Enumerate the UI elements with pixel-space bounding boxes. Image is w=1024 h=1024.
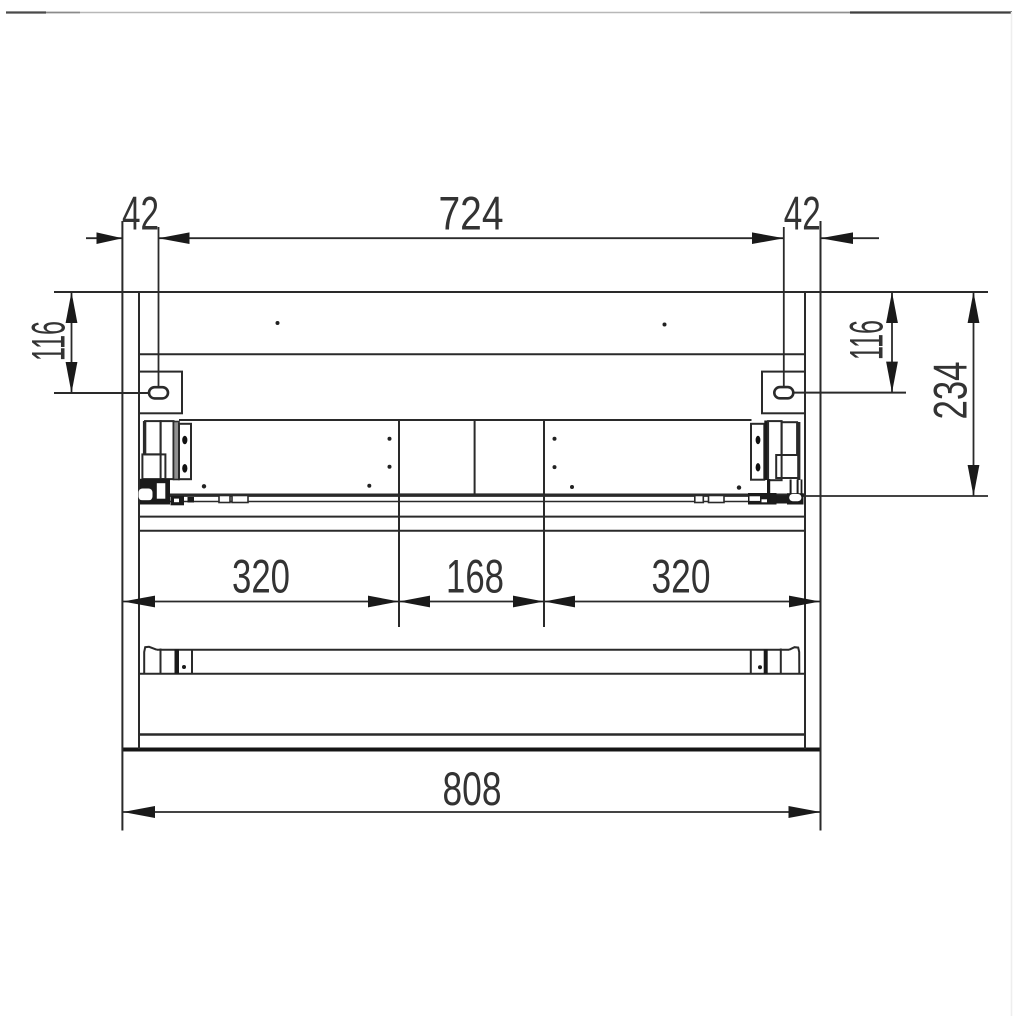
svg-text:116: 116 (23, 321, 76, 361)
svg-text:116: 116 (841, 320, 894, 360)
svg-text:168: 168 (446, 551, 504, 604)
svg-text:234: 234 (925, 362, 978, 420)
svg-text:320: 320 (232, 551, 290, 604)
svg-text:808: 808 (443, 763, 502, 816)
svg-text:320: 320 (652, 551, 711, 604)
svg-text:724: 724 (439, 188, 504, 241)
svg-text:42: 42 (122, 188, 159, 241)
svg-text:42: 42 (784, 188, 821, 241)
